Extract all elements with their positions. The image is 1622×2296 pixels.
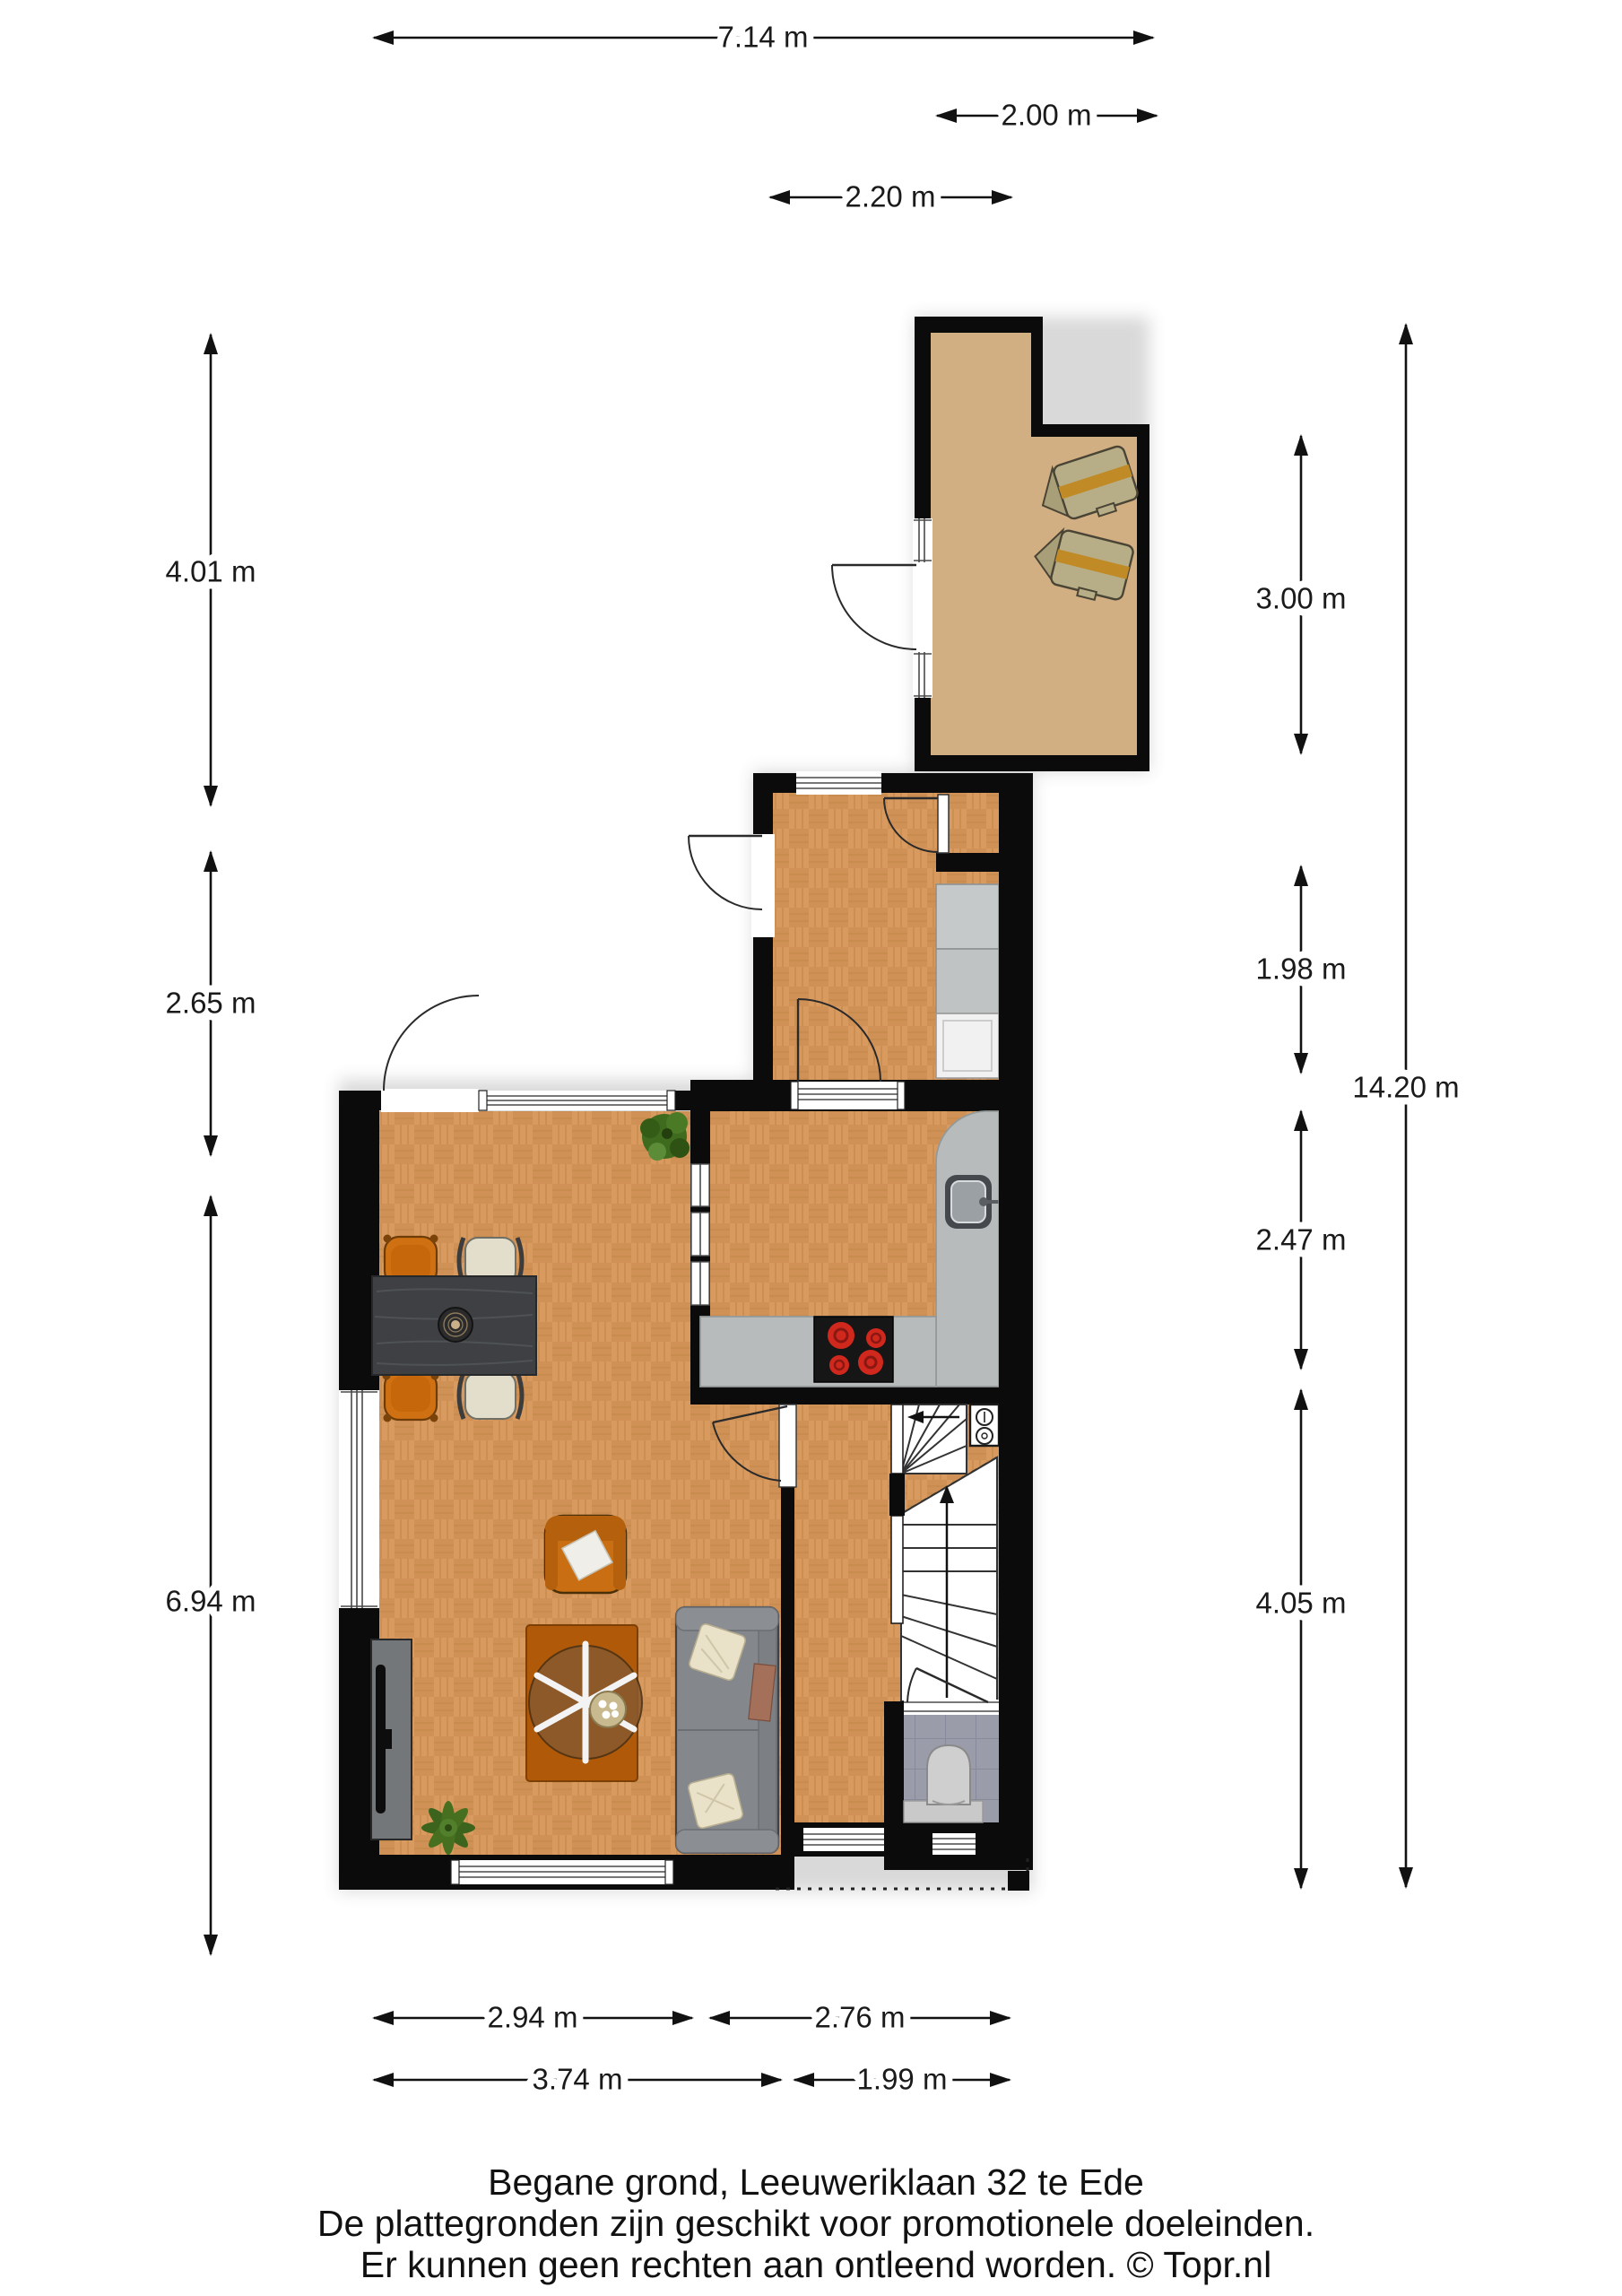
dim-hall-outer: 1.99 m bbox=[794, 2063, 1010, 2096]
dim-living-outer: 3.74 m bbox=[374, 2063, 781, 2096]
front-door bbox=[381, 996, 479, 1112]
sofa bbox=[676, 1607, 778, 1853]
storage-wall-right bbox=[1137, 424, 1149, 771]
footer: Begane grond, Leeuweriklaan 32 te Ede De… bbox=[317, 2161, 1314, 2285]
utility-wall-below-alcove bbox=[936, 853, 999, 872]
dim-right-kitchen: 2.47 m bbox=[1256, 1111, 1347, 1369]
dim-label-left-upper: 4.01 m bbox=[166, 555, 256, 588]
dim-label-living-inner: 2.94 m bbox=[488, 2001, 578, 2034]
partition-window bbox=[691, 1164, 709, 1305]
tv-sideboard bbox=[371, 1639, 412, 1839]
dim-living-inner: 2.94 m bbox=[374, 2001, 692, 2034]
toilet-bowl bbox=[927, 1745, 970, 1805]
dim-right-hall: 4.05 m bbox=[1256, 1390, 1347, 1888]
living-window-top bbox=[479, 1091, 675, 1110]
washer-dryer-column bbox=[936, 884, 999, 1078]
plant-floor bbox=[421, 1801, 475, 1855]
dim-label-right-utility: 1.98 m bbox=[1256, 952, 1347, 986]
dim-label-living-outer: 3.74 m bbox=[533, 2063, 623, 2096]
dim-left-upper: 4.01 m bbox=[166, 335, 256, 805]
footer-disclaimer-1: De plattegronden zijn geschikt voor prom… bbox=[317, 2203, 1314, 2244]
utility-wall-top bbox=[753, 773, 1033, 793]
dim-utility-width: 2.20 m bbox=[770, 180, 1011, 213]
storage-window-lower bbox=[913, 652, 932, 698]
storage-wall-bottom bbox=[915, 755, 1149, 771]
utility-wall-left bbox=[753, 773, 773, 1111]
dim-left-middle: 2.65 m bbox=[166, 852, 256, 1155]
coffee-table bbox=[529, 1644, 642, 1761]
storage-wall-step-h bbox=[1031, 424, 1149, 437]
living-window-left bbox=[339, 1390, 379, 1608]
dim-right-storage: 3.00 m bbox=[1256, 436, 1347, 753]
dim-label-utility-width: 2.20 m bbox=[846, 180, 936, 213]
dim-label-total-height: 14.20 m bbox=[1352, 1071, 1459, 1104]
dim-label-storage-width: 2.00 m bbox=[1002, 99, 1092, 132]
dim-label-right-hall: 4.05 m bbox=[1256, 1587, 1347, 1620]
dim-label-right-storage: 3.00 m bbox=[1256, 582, 1347, 615]
storage-window-upper bbox=[913, 518, 932, 562]
dim-total-width: 7.14 m bbox=[374, 21, 1153, 54]
dim-kitchen-inner: 2.76 m bbox=[710, 2001, 1010, 2034]
hall-window-bottom bbox=[803, 1828, 884, 1851]
floorplan-page: 7.14 m 2.00 m 2.20 m 4.01 m 2.65 m 6.94 … bbox=[0, 0, 1622, 2296]
tv bbox=[376, 1665, 386, 1813]
stove bbox=[814, 1317, 893, 1382]
dim-right-utility: 1.98 m bbox=[1256, 866, 1347, 1073]
toilet-window bbox=[932, 1833, 976, 1855]
house-wall-right bbox=[999, 773, 1033, 1870]
dim-label-left-living: 6.94 m bbox=[166, 1585, 256, 1618]
dim-label-left-middle: 2.65 m bbox=[166, 987, 256, 1020]
footer-disclaimer-2: Er kunnen geen rechten aan ontleend word… bbox=[360, 2244, 1271, 2285]
dim-label-right-kitchen: 2.47 m bbox=[1256, 1223, 1347, 1257]
storage-door bbox=[832, 562, 932, 652]
dim-label-hall-outer: 1.99 m bbox=[857, 2063, 948, 2096]
living-window-bottom bbox=[451, 1860, 673, 1884]
dim-label-kitchen-inner: 2.76 m bbox=[815, 2001, 906, 2034]
storage-wall-top bbox=[915, 317, 1043, 333]
dim-left-living: 6.94 m bbox=[166, 1196, 256, 1954]
utility-window bbox=[796, 771, 881, 795]
utility-side-door bbox=[689, 834, 775, 937]
dining-table bbox=[372, 1276, 536, 1375]
meter-cupboard bbox=[970, 1405, 999, 1446]
floor-plan-canvas: 7.14 m 2.00 m 2.20 m 4.01 m 2.65 m 6.94 … bbox=[0, 0, 1622, 2296]
dim-label-total-width: 7.14 m bbox=[718, 21, 809, 54]
footer-title: Begane grond, Leeuweriklaan 32 te Ede bbox=[488, 2161, 1144, 2203]
dim-total-height: 14.20 m bbox=[1352, 325, 1459, 1887]
armchair bbox=[545, 1516, 626, 1593]
storage-wall-step-v bbox=[1031, 317, 1043, 437]
dim-storage-width: 2.00 m bbox=[937, 99, 1157, 132]
